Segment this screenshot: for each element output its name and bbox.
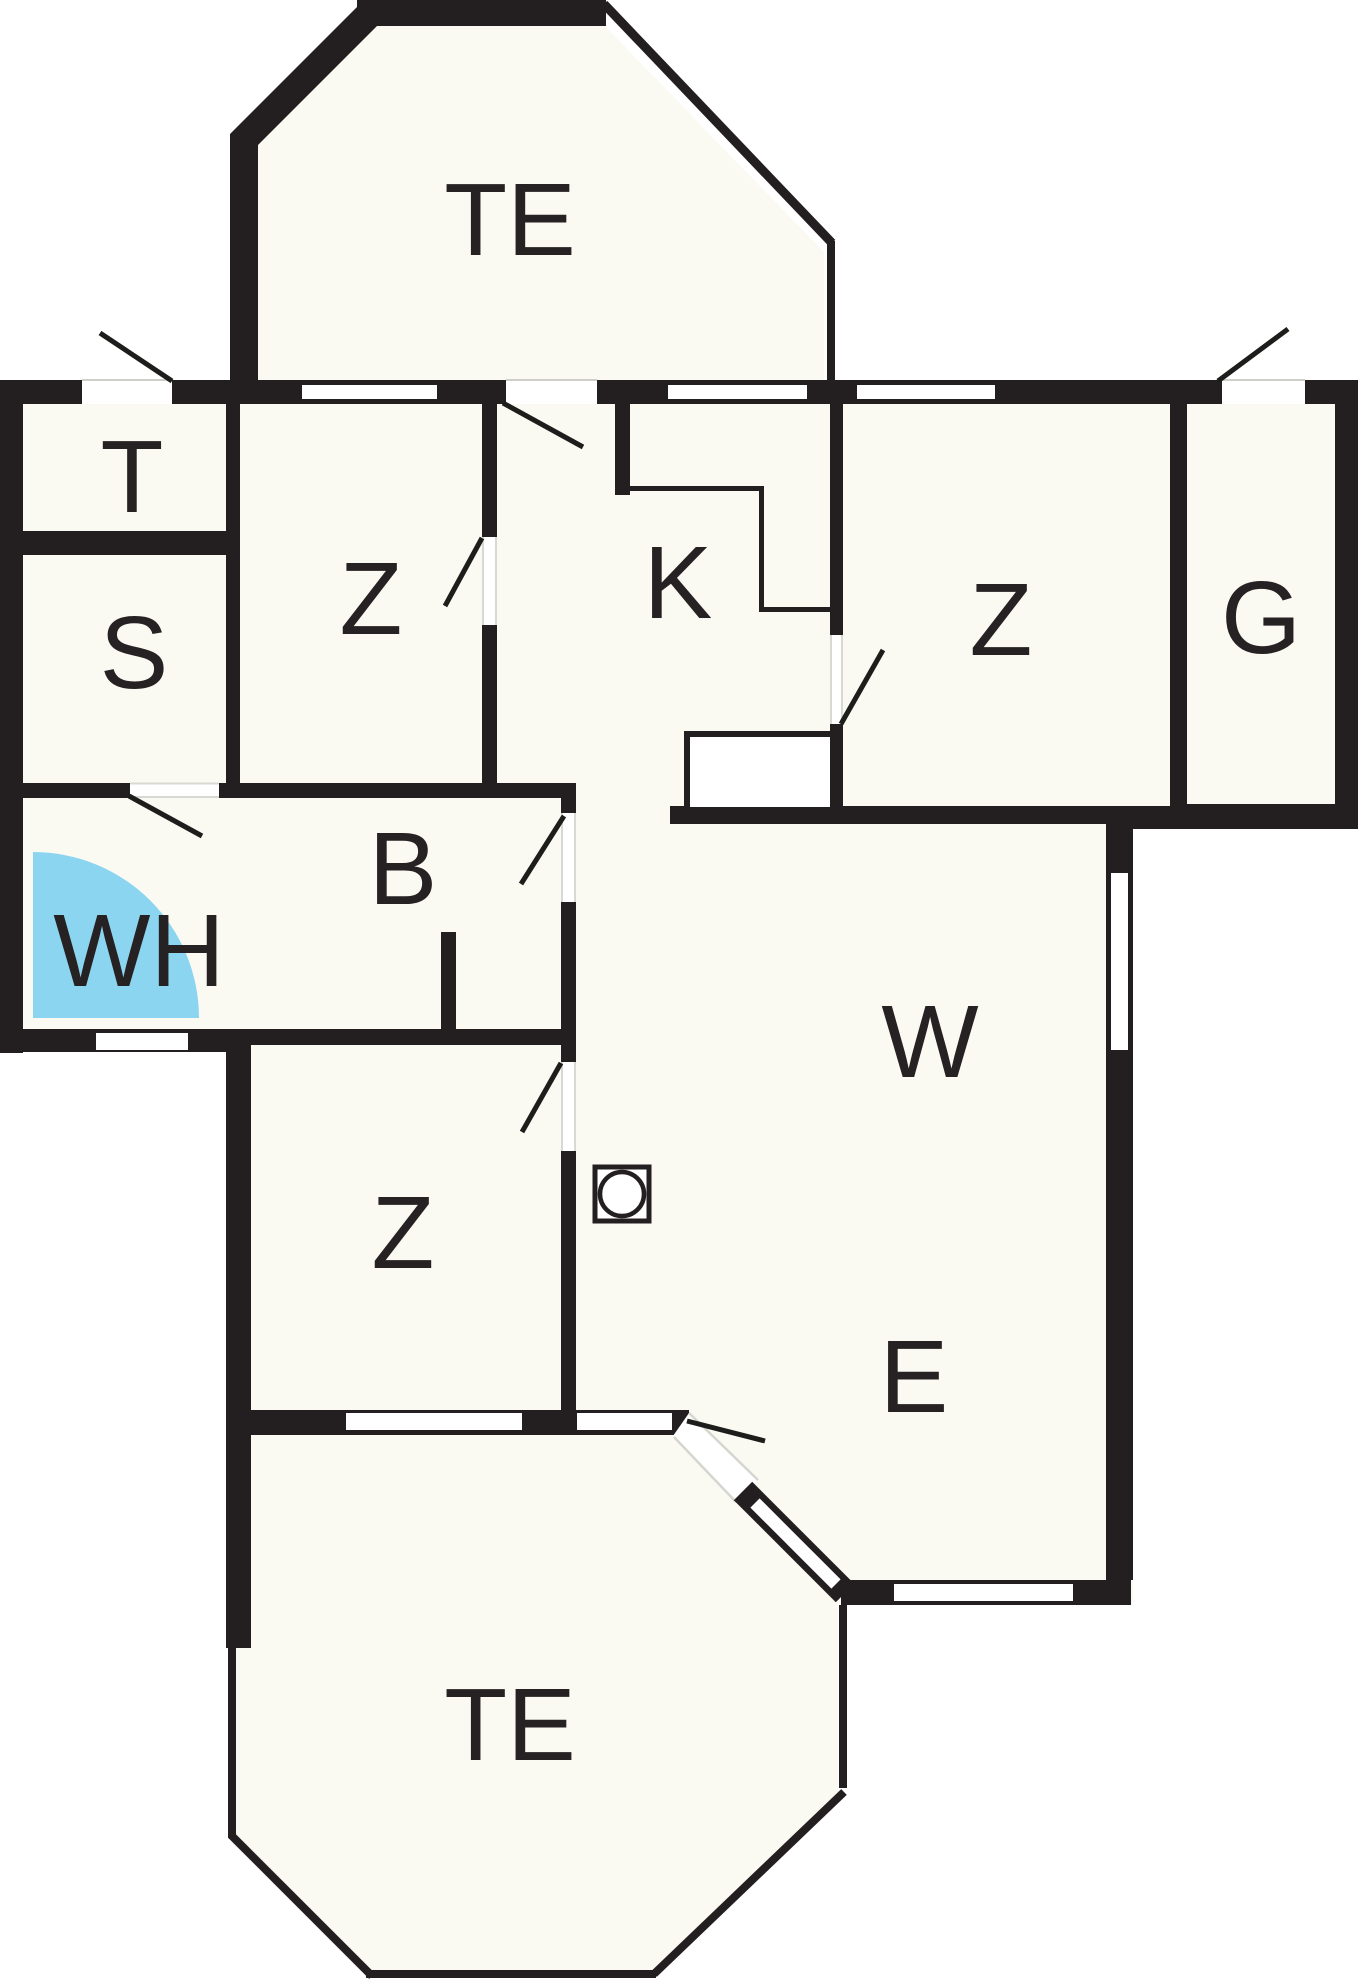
svg-text:TE: TE <box>444 162 576 277</box>
svg-text:Z: Z <box>340 541 403 656</box>
svg-text:K: K <box>644 525 713 640</box>
svg-text:B: B <box>369 811 438 926</box>
svg-text:Z: Z <box>372 1175 435 1290</box>
svg-text:Z: Z <box>970 562 1033 677</box>
svg-text:G: G <box>1221 560 1301 675</box>
svg-text:TE: TE <box>444 1667 576 1782</box>
svg-text:WH: WH <box>53 893 225 1008</box>
svg-text:W: W <box>881 984 978 1099</box>
svg-text:T: T <box>101 419 164 534</box>
svg-text:E: E <box>880 1319 949 1434</box>
svg-text:S: S <box>100 595 169 710</box>
